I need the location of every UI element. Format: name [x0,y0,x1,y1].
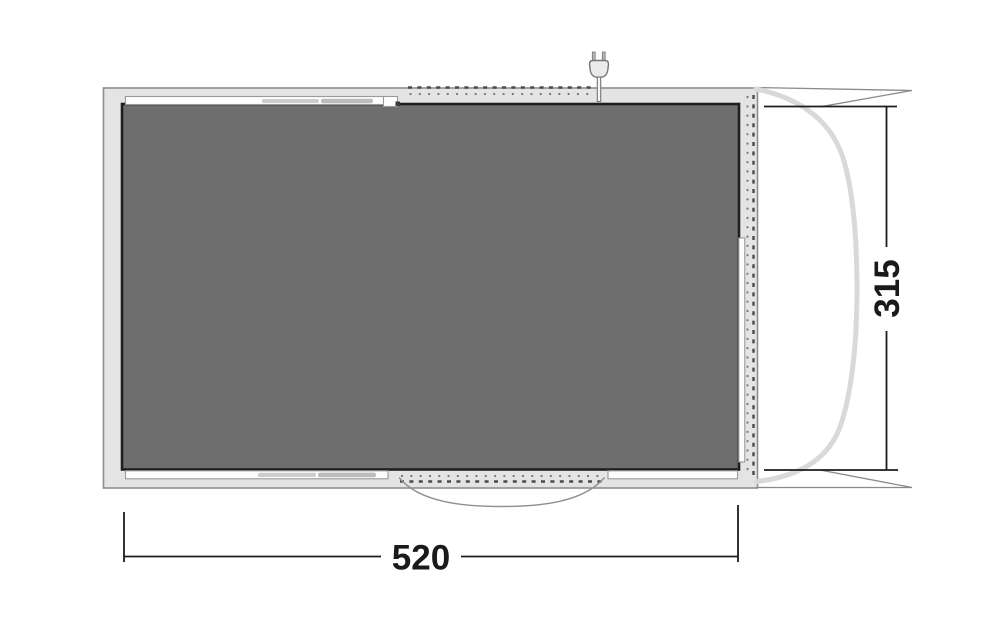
dimension-width: 520 [124,505,738,578]
plug-cable [597,77,600,102]
dim-label-height: 315 [868,259,907,317]
window-bar [318,473,376,478]
tent-floorplan-diagram: 520 315 [0,0,997,635]
window-bar [262,99,319,103]
zipper-stop [396,102,401,107]
floorplan-canvas: 520 315 [0,0,997,635]
awning-curve [756,89,857,482]
window-strip-right [739,238,745,462]
dimension-height: 315 [764,107,907,471]
window-strip-bottom-right [608,471,738,479]
plug-body [590,61,609,78]
zipper-notch [384,97,398,107]
tent-floor [122,104,739,470]
window-bar [321,99,373,104]
window-bar [258,473,316,477]
dim-label-width: 520 [392,539,450,578]
